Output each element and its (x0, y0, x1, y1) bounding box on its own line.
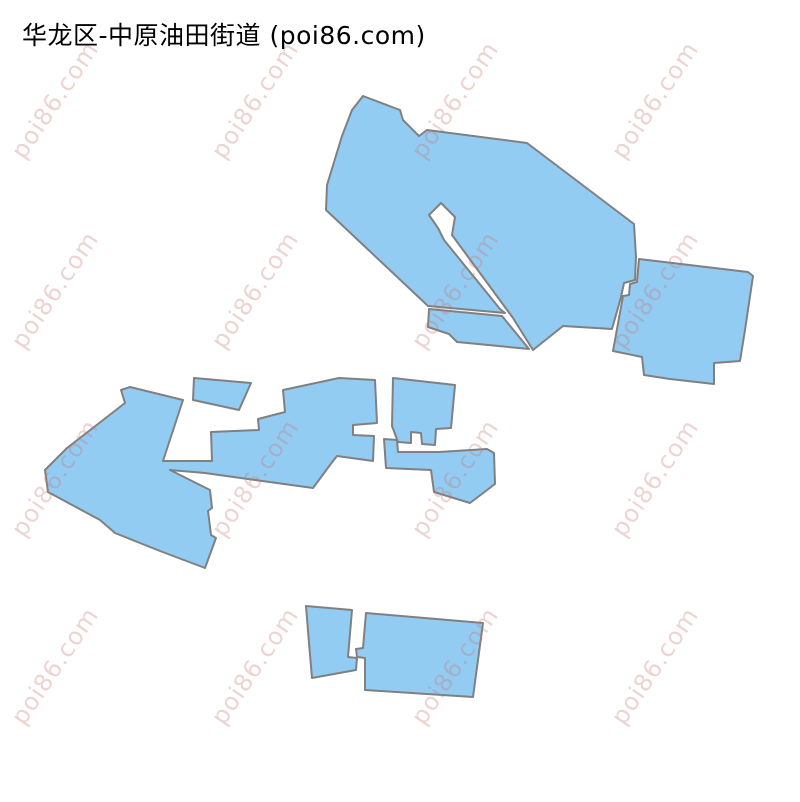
district-map (0, 0, 800, 802)
boundary-middle-main-polygon (45, 378, 377, 568)
boundary-middle-east-rect-polygon (392, 378, 455, 445)
map-page: 华龙区-中原油田街道 (poi86.com) poi86.compoi86.co… (0, 0, 800, 802)
boundary-south-right-polygon (356, 613, 483, 697)
boundary-north-main-polygon (326, 96, 636, 350)
boundary-middle-trapezoid-polygon (193, 378, 251, 410)
boundary-middle-south-polygon (384, 439, 495, 503)
page-title: 华龙区-中原油田街道 (poi86.com) (22, 16, 426, 52)
boundary-south-left-polygon (306, 606, 357, 678)
